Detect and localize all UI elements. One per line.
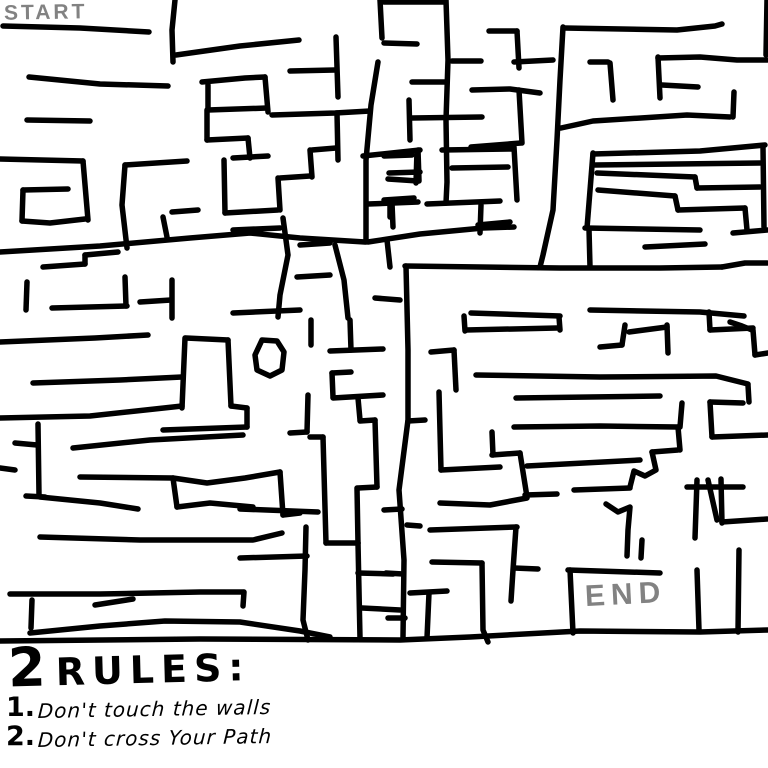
maze-wall: [680, 403, 682, 427]
maze-wall: [95, 599, 133, 605]
maze-wall: [31, 600, 32, 628]
maze-wall: [590, 310, 744, 316]
maze-wall: [10, 592, 243, 594]
maze-wall: [368, 227, 514, 242]
maze-wall: [43, 264, 85, 267]
maze-wall: [755, 353, 768, 355]
maze-wall: [416, 151, 417, 183]
maze-wall: [464, 316, 465, 331]
maze-wall: [15, 443, 37, 445]
maze-wall: [622, 325, 625, 345]
maze-wall: [83, 161, 88, 220]
maze-wall: [585, 228, 700, 230]
maze-wall: [272, 111, 370, 115]
maze-wall: [710, 402, 712, 437]
maze-wall: [658, 57, 767, 60]
maze-wall: [733, 230, 767, 233]
maze-wall: [482, 563, 488, 642]
maze-wall: [733, 92, 734, 117]
maze-wall: [386, 573, 403, 574]
maze-wall: [80, 472, 280, 483]
maze-wall: [312, 148, 336, 150]
maze-wall: [514, 60, 553, 62]
maze-wall: [399, 266, 408, 637]
maze-wall: [712, 435, 768, 437]
maze-wall: [357, 488, 358, 543]
end-label: END: [584, 576, 667, 614]
maze-wall: [516, 396, 660, 398]
maze-wall: [600, 345, 622, 347]
maze-wall: [384, 43, 417, 44]
maze-wall: [0, 406, 182, 418]
maze-wall: [471, 313, 560, 316]
maze-wall: [173, 478, 177, 507]
maze-wall: [350, 320, 351, 350]
maze-wall: [441, 467, 500, 470]
maze-wall: [233, 156, 268, 158]
maze-wall: [492, 432, 493, 455]
maze-wall: [337, 113, 338, 160]
maze-wall: [527, 460, 640, 466]
maze-wall: [722, 263, 767, 267]
maze-wall: [610, 63, 613, 100]
maze-wall: [3, 26, 149, 32]
maze-wall: [407, 525, 420, 526]
maze-wall: [0, 335, 148, 342]
maze-wall: [375, 298, 400, 300]
maze-wall: [125, 161, 187, 165]
maze-wall: [224, 160, 225, 213]
maze-wall: [593, 145, 765, 154]
maze-wall: [297, 275, 330, 277]
maze-wall: [595, 163, 760, 165]
maze-wall: [678, 208, 745, 210]
maze-wall: [697, 570, 699, 630]
maze-wall: [330, 349, 383, 351]
maze-wall: [606, 504, 630, 556]
rules-block: 2 RULES: 1. Don't touch the walls 2. Don…: [8, 638, 272, 752]
maze-wall: [658, 57, 660, 98]
maze-wall: [323, 437, 326, 543]
maze-wall: [430, 527, 517, 530]
maze-wall: [721, 479, 722, 523]
maze-wall: [358, 398, 360, 420]
maze-wall: [559, 317, 560, 330]
maze-wall: [439, 392, 441, 470]
maze-wall: [722, 519, 767, 522]
maze-wall: [172, 210, 198, 212]
maze-wall: [52, 306, 127, 308]
maze-wall: [30, 621, 330, 637]
maze-wall: [641, 540, 642, 558]
maze-wall: [380, 0, 382, 38]
rule-2-text: Don't cross Your Path: [37, 724, 273, 752]
maze-wall: [387, 240, 390, 267]
maze-wall: [389, 172, 420, 173]
maze-wall: [233, 310, 300, 313]
maze-wall: [202, 77, 265, 82]
maze-wall: [476, 375, 748, 384]
maze-wall: [763, 147, 764, 227]
maze-wall: [303, 527, 308, 640]
maze-wall: [738, 550, 739, 632]
maze-wall: [290, 432, 307, 433]
maze-wall: [645, 244, 705, 247]
maze-wall: [520, 453, 527, 497]
maze-wall: [753, 330, 755, 355]
maze-wall: [27, 120, 90, 121]
maze-wall: [23, 189, 68, 190]
maze-wall: [766, 0, 767, 55]
maze-wall: [182, 338, 185, 408]
maze-wall: [629, 327, 667, 332]
maze-wall: [208, 108, 267, 110]
maze-wall: [440, 498, 527, 505]
maze-wall: [695, 480, 697, 538]
maze-wall: [511, 527, 516, 601]
maze-wall: [278, 178, 280, 210]
rules-heading: 2 RULES:: [7, 635, 272, 696]
maze-wall: [519, 90, 522, 143]
start-label: START: [4, 0, 88, 25]
rules-heading-number: 2: [7, 640, 46, 695]
maze-wall: [597, 173, 695, 177]
maze-wall: [375, 420, 377, 487]
maze-wall: [307, 395, 308, 432]
maze-wall: [427, 201, 500, 204]
maze-wall: [335, 245, 348, 318]
maze-wall: [225, 210, 278, 213]
maze-wall: [574, 488, 630, 490]
maze-wall: [40, 497, 138, 509]
maze-wall: [290, 70, 335, 71]
maze-wall: [243, 592, 244, 606]
maze-wall: [29, 77, 168, 86]
maze-wall: [362, 608, 400, 610]
maze-wall: [186, 338, 228, 340]
maze-wall: [662, 85, 698, 87]
maze-wall: [446, 0, 448, 203]
maze-wall: [427, 593, 429, 638]
maze-wall: [466, 328, 557, 330]
maze-wall: [384, 155, 412, 156]
maze-wall: [598, 190, 675, 196]
maze-wall: [358, 487, 377, 488]
rule-item-1: 1. Don't touch the walls: [6, 694, 272, 722]
maze-wall: [697, 187, 760, 188]
maze-wall: [22, 219, 85, 223]
maze-wall: [73, 435, 243, 448]
maze-wall: [125, 277, 126, 306]
maze-wall: [710, 402, 743, 403]
maze-wall: [0, 468, 15, 470]
maze-wall: [332, 373, 333, 397]
maze-wall: [409, 100, 410, 140]
maze-wall: [176, 40, 299, 55]
maze-wall: [310, 150, 312, 177]
maze-page: START END 2 RULES: 1. Don't touch the wa…: [0, 0, 768, 768]
maze-wall: [568, 570, 660, 573]
maze-wall: [678, 427, 680, 450]
rule-item-2: 2. Don't cross Your Path: [6, 723, 272, 751]
maze-wall: [0, 159, 83, 161]
maze-wall: [240, 509, 318, 512]
maze-wall: [228, 340, 231, 406]
rule-2-number: 2.: [6, 723, 35, 751]
maze-wall: [40, 533, 282, 540]
maze-wall: [514, 568, 538, 569]
maze-wall: [431, 350, 454, 352]
maze-wall: [748, 385, 749, 402]
maze-wall: [358, 543, 360, 638]
maze-wall: [255, 340, 284, 376]
maze-wall: [26, 282, 27, 310]
maze-wall: [22, 190, 23, 221]
maze-wall: [587, 153, 593, 228]
maze-wall: [163, 217, 167, 237]
maze-wall: [332, 372, 351, 373]
maze-wall: [140, 300, 171, 302]
maze-wall: [412, 117, 482, 118]
maze-wall: [207, 138, 248, 140]
maze-wall: [667, 325, 668, 353]
maze-wall: [85, 252, 118, 255]
maze-wall: [432, 562, 482, 563]
maze-wall: [454, 350, 456, 390]
maze-wall: [745, 208, 747, 230]
maze-wall: [122, 165, 127, 248]
maze-wall: [278, 218, 288, 317]
maze-wall: [280, 176, 310, 178]
maze-wall: [630, 452, 656, 487]
maze-wall: [561, 115, 730, 128]
maze-wall: [492, 453, 520, 455]
maze-wall: [240, 556, 307, 558]
maze-wall: [514, 426, 678, 427]
maze-wall: [163, 427, 247, 430]
rules-heading-word: RULES:: [55, 648, 251, 691]
maze-wall: [33, 377, 182, 383]
maze-wall: [472, 89, 540, 93]
maze-wall: [589, 229, 590, 267]
maze-wall: [405, 266, 722, 268]
maze-wall: [564, 24, 722, 30]
maze-wall: [336, 37, 338, 97]
rule-1-text: Don't touch the walls: [37, 695, 272, 723]
maze-wall: [300, 243, 330, 245]
maze-wall: [452, 167, 508, 168]
maze-wall: [38, 424, 39, 495]
maze-wall: [233, 228, 280, 230]
maze-wall: [652, 450, 678, 452]
maze-wall: [525, 494, 557, 495]
maze-wall: [514, 147, 517, 200]
maze-wall: [570, 570, 573, 633]
